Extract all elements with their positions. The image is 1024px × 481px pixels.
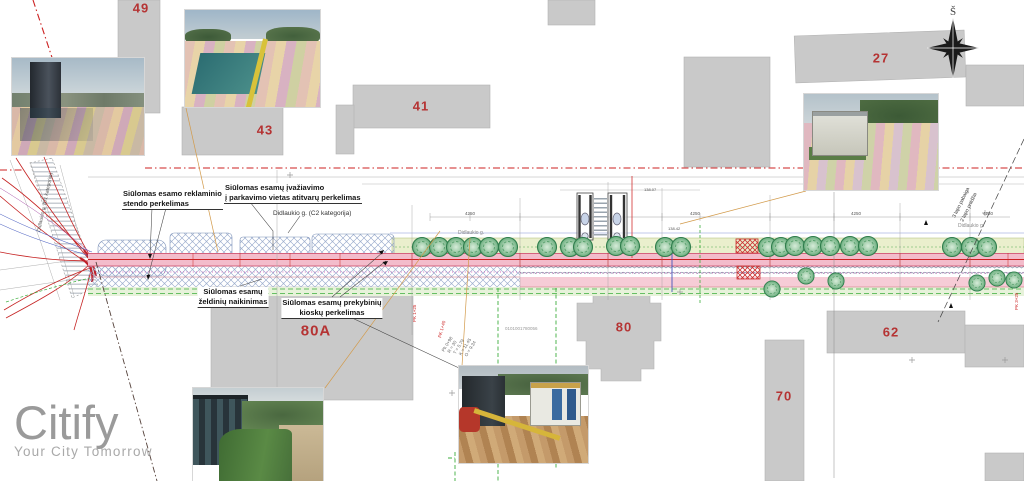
photo-plaza-tactile-paving — [185, 10, 320, 107]
parcel-ref-text: 0101001780056 — [505, 326, 538, 331]
building-label-62: 62 — [883, 325, 899, 340]
annotation-line: Siūlomas esamo reklaminio — [123, 189, 222, 199]
building-top-mid — [548, 0, 595, 25]
photo-hedge — [219, 429, 292, 481]
paver-band — [520, 266, 1024, 277]
dimension-text: 4250 — [851, 211, 862, 216]
removal-hatch-upper — [736, 239, 758, 253]
dimension-text: 4250 — [983, 211, 994, 216]
photo-poster — [567, 389, 576, 420]
annotation-line: Siūlomas esamų prekybinių — [282, 298, 381, 308]
photo-street-advertising-pillar — [12, 58, 144, 155]
photo-bus-stop-kiosk — [459, 366, 588, 463]
dimension-text: 4250 — [465, 211, 476, 216]
dimension-text: 4250 — [690, 211, 701, 216]
building-tall-mid — [684, 57, 770, 167]
building-label-43: 43 — [257, 123, 273, 138]
photo-shadow — [20, 108, 93, 141]
building-bottom-right — [985, 453, 1024, 481]
annotation-line: Siūlomas esamų — [199, 287, 268, 297]
photo-kiosk — [812, 111, 868, 155]
street-name-label: Didlaukio g. — [458, 230, 484, 236]
photo-building-hedge-path — [193, 388, 323, 481]
sheet-break-labels: 3 lapo pabaiga 2 lapo pradžia — [951, 187, 978, 223]
annotation-line: stendo perkelimas — [123, 199, 222, 209]
building-label-80: 80 — [616, 320, 632, 335]
annotation-greenery-removal: Siūlomas esamų želdinių naikinimas — [198, 287, 269, 308]
annotation-driveway-barriers-relocation: Siūlomas esamų įvažiavimo į parkavimo vi… — [224, 183, 362, 204]
annotation-street-category: Didlaukio g. (C2 kategorija) — [272, 209, 352, 219]
building-80 — [577, 291, 661, 381]
building-70 — [765, 340, 804, 481]
building-label-70: 70 — [776, 389, 792, 404]
annotation-line: Siūlomas esamų įvažiavimo — [225, 183, 361, 193]
building-right-top — [966, 65, 1024, 106]
parking-entrance-modules — [577, 193, 627, 240]
annotation-ad-stand-relocation: Siūlomas esamo reklaminio stendo perkeli… — [122, 189, 223, 210]
curve-data-block: Pk 0+98 R = 30 T = 5.79 K = 11.45 O = 9.… — [441, 328, 478, 364]
annotation-line: želdinių naikinimas — [199, 297, 268, 307]
station-text: PK 1+25 — [412, 304, 417, 322]
station-text: PK 3+25 — [1014, 292, 1019, 310]
level-text: 138.42 — [668, 226, 681, 231]
annotation-line: į parkavimo vietas atitvarų perkelimas — [225, 193, 361, 203]
building-label-49: 49 — [133, 1, 149, 16]
compass-north-label: Š — [950, 6, 956, 18]
logo-wordmark: Citify — [14, 398, 153, 448]
building-41-annex — [336, 105, 354, 154]
building-label-80a: 80A — [301, 323, 332, 340]
street-name-label: Didlaukio g. — [958, 223, 984, 229]
building-label-27: 27 — [873, 51, 889, 66]
building-label-41: 41 — [413, 99, 429, 114]
removal-hatch-lower — [737, 266, 760, 279]
building-62-right — [965, 325, 1024, 367]
annotation-line: kioskų perkelimas — [282, 308, 381, 318]
photo-poster — [552, 389, 562, 420]
site-plan-sheet: Didlaukio g. Didlaukio g. 4250 4250 4250… — [0, 0, 1024, 481]
logo-tagline: Your City Tomorrow — [14, 444, 153, 459]
station-text: PK 1+40 — [437, 320, 446, 339]
level-text: 138.07 — [644, 187, 657, 192]
citify-logo: Citify Your City Tomorrow — [14, 398, 153, 459]
annotation-kiosk-relocation: Siūlomas esamų prekybinių kioskų perkeli… — [281, 298, 382, 319]
photo-sidewalk-kiosk — [804, 94, 938, 190]
